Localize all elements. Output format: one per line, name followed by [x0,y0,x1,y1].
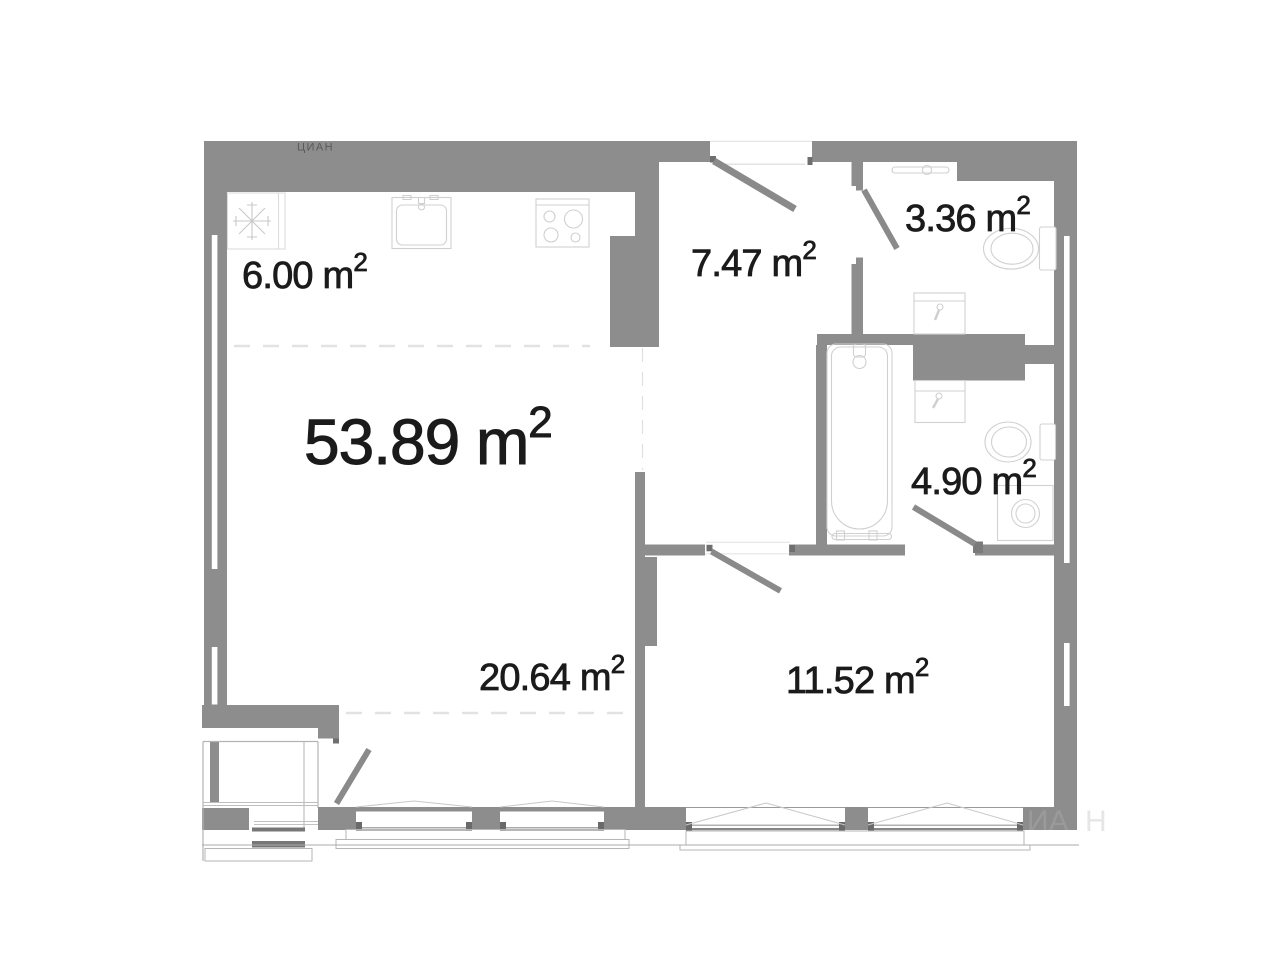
svg-text:4.90 m2: 4.90 m2 [911,453,1036,503]
svg-text:Н: Н [1085,805,1107,838]
svg-text:7.47 m2: 7.47 m2 [691,235,816,285]
svg-text:11.52 m2: 11.52 m2 [786,652,929,702]
svg-text:ЦИАН: ЦИАН [297,142,334,154]
svg-text:6.00 m2: 6.00 m2 [242,247,367,297]
svg-text:3.36 m2: 3.36 m2 [905,190,1030,240]
svg-text:20.64 m2: 20.64 m2 [479,649,625,699]
svg-text:53.89 m2: 53.89 m2 [304,398,552,478]
